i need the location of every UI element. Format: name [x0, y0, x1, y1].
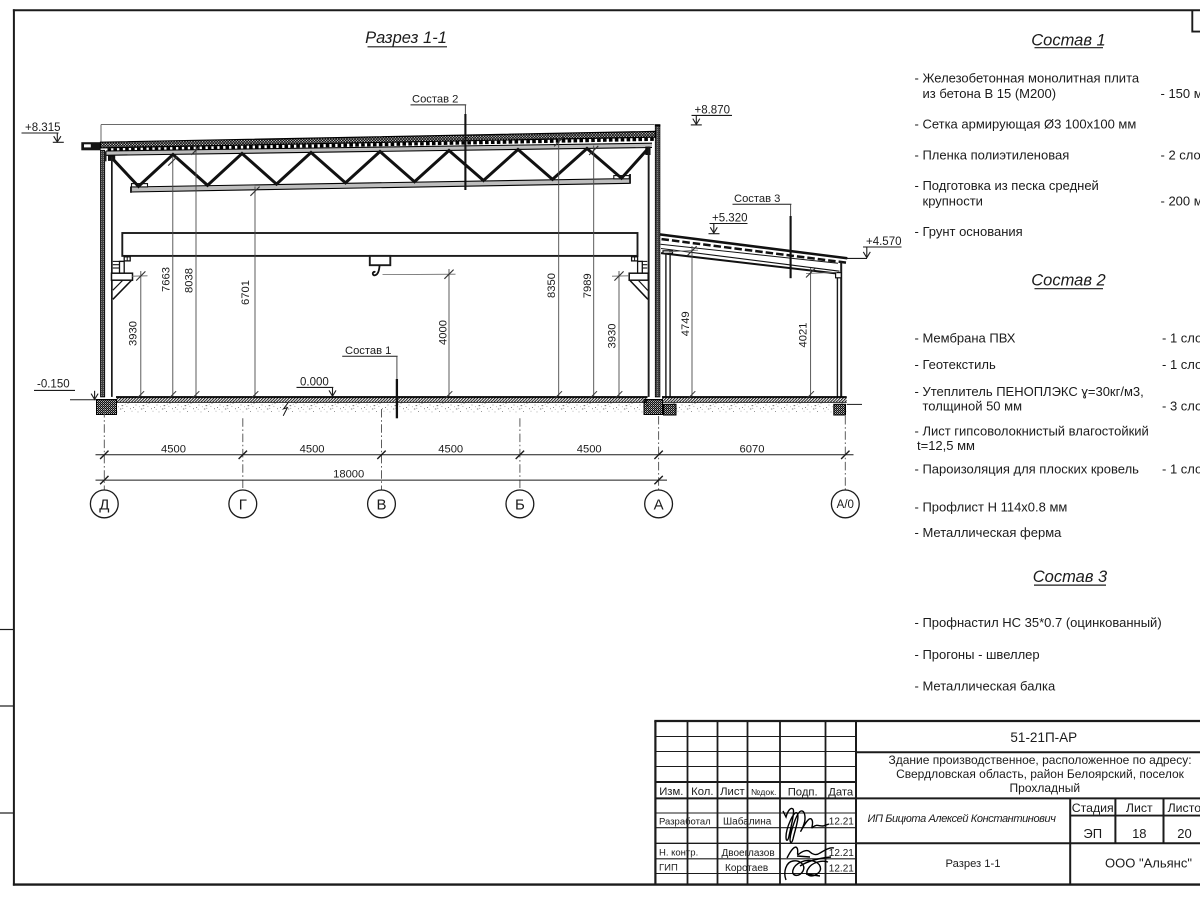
svg-text:Дата: Дата	[828, 786, 854, 798]
svg-text:20: 20	[1177, 826, 1191, 841]
svg-text:- Профнастил НС 35*0.7 (оцинко: - Профнастил НС 35*0.7 (оцинкованный)	[915, 615, 1162, 630]
svg-text:Свердловская область, район Бе: Свердловская область, район Белоярский, …	[896, 767, 1185, 781]
svg-text:- Сетка армирующая Ø3 100х100: - Сетка армирующая Ø3 100х100 мм	[915, 117, 1137, 132]
svg-text:4500: 4500	[577, 443, 602, 455]
svg-text:18: 18	[1132, 826, 1146, 841]
svg-text:Коротаев: Коротаев	[725, 863, 768, 874]
svg-text:Кол.: Кол.	[691, 786, 713, 798]
svg-text:крупности: крупности	[923, 194, 983, 209]
svg-text:Разрез 1-1: Разрез 1-1	[365, 29, 447, 47]
svg-text:3930: 3930	[606, 324, 618, 349]
svg-text:Здание производственное, распо: Здание производственное, расположенное п…	[888, 753, 1191, 767]
svg-text:-0.150: -0.150	[37, 379, 70, 391]
svg-text:А/0: А/0	[837, 499, 854, 511]
svg-text:- 1 слой: - 1 слой	[1162, 462, 1200, 477]
svg-text:0.000: 0.000	[300, 377, 329, 389]
svg-text:4500: 4500	[438, 443, 463, 455]
svg-text:18000: 18000	[333, 469, 364, 481]
svg-text:7989: 7989	[582, 273, 594, 298]
svg-text:- 1 слой: - 1 слой	[1162, 330, 1200, 345]
svg-text:4021: 4021	[798, 323, 810, 348]
svg-text:- 1 слой: - 1 слой	[1162, 357, 1200, 372]
svg-text:Изм.: Изм.	[659, 786, 683, 798]
svg-text:Двоеглазов: Двоеглазов	[722, 848, 775, 859]
svg-text:- Металлическая балка: - Металлическая балка	[915, 679, 1056, 694]
svg-text:ЭП: ЭП	[1083, 826, 1102, 841]
svg-text:12.21: 12.21	[829, 848, 854, 859]
svg-text:№док.: №док.	[751, 787, 776, 797]
svg-text:В: В	[376, 496, 386, 513]
svg-text:6701: 6701	[240, 280, 252, 305]
svg-text:Состав 2: Состав 2	[412, 94, 458, 106]
svg-text:- Мембрана ПВХ: - Мембрана ПВХ	[915, 330, 1016, 345]
svg-text:+5.320: +5.320	[712, 213, 748, 225]
svg-text:- Прогоны - швеллер: - Прогоны - швеллер	[915, 647, 1040, 662]
svg-text:51-21П-АР: 51-21П-АР	[1010, 730, 1077, 745]
svg-text:Разрез 1-1: Разрез 1-1	[946, 858, 1001, 870]
svg-text:Г: Г	[239, 496, 247, 513]
svg-text:4000: 4000	[438, 320, 450, 345]
svg-text:7663: 7663	[161, 267, 173, 292]
svg-text:t=12,5 мм: t=12,5 мм	[917, 438, 975, 453]
svg-text:12.21: 12.21	[829, 863, 854, 874]
svg-text:4500: 4500	[300, 443, 325, 455]
svg-text:8350: 8350	[546, 273, 558, 298]
svg-text:Д: Д	[99, 496, 109, 513]
svg-text:Стадия: Стадия	[1072, 801, 1114, 815]
svg-text:ГИП: ГИП	[659, 863, 678, 874]
svg-text:- 2 слоя: - 2 слоя	[1161, 148, 1200, 163]
svg-text:- Профлист Н 114х0.8 мм: - Профлист Н 114х0.8 мм	[915, 500, 1068, 515]
svg-text:ИП Бицюта Алексей Константинов: ИП Бицюта Алексей Константинович	[868, 813, 1057, 825]
svg-text:Состав 1: Состав 1	[1031, 31, 1105, 49]
svg-text:- Грунт основания: - Грунт основания	[915, 224, 1023, 239]
svg-text:- 150 мм: - 150 мм	[1161, 86, 1200, 101]
svg-text:- Подготовка из песка средней: - Подготовка из песка средней	[915, 178, 1099, 193]
svg-text:- Железобетонная монолитная п: - Железобетонная монолитная плита	[915, 71, 1140, 86]
svg-text:Шабалина: Шабалина	[723, 816, 772, 828]
svg-text:из бетона В 15 (М200): из бетона В 15 (М200)	[923, 86, 1057, 101]
svg-text:- Утеплитель ПЕНОПЛЭКС ɣ=30кг/: - Утеплитель ПЕНОПЛЭКС ɣ=30кг/м3,	[915, 384, 1144, 399]
svg-text:Лист: Лист	[720, 786, 745, 798]
svg-text:- 3 слоя: - 3 слоя	[1162, 398, 1200, 413]
svg-text:3930: 3930	[127, 321, 139, 346]
svg-text:Листов: Листов	[1168, 801, 1200, 815]
svg-text:Н. контр.: Н. контр.	[659, 848, 698, 859]
svg-text:Разработал: Разработал	[659, 816, 711, 827]
svg-text:- Металлическая ферма: - Металлическая ферма	[915, 525, 1063, 540]
svg-text:А: А	[654, 496, 664, 513]
svg-text:4500: 4500	[161, 443, 186, 455]
svg-text:Подп.: Подп.	[788, 786, 818, 798]
svg-text:- Геотекстиль: - Геотекстиль	[915, 357, 996, 372]
svg-text:4749: 4749	[680, 311, 692, 336]
svg-text:Состав 3: Состав 3	[734, 193, 780, 205]
svg-text:- Пленка полиэтиленовая: - Пленка полиэтиленовая	[915, 148, 1070, 163]
svg-text:Состав 1: Состав 1	[345, 345, 391, 357]
svg-text:+4.570: +4.570	[866, 236, 902, 248]
svg-text:ООО "Альянс": ООО "Альянс"	[1105, 855, 1192, 870]
svg-text:12.21: 12.21	[829, 817, 854, 828]
svg-text:6070: 6070	[740, 443, 765, 455]
svg-text:толщиной 50 мм: толщиной 50 мм	[923, 398, 1023, 413]
svg-text:Лист: Лист	[1126, 801, 1153, 815]
svg-text:- Пароизоляция для плоских кро: - Пароизоляция для плоских кровель	[915, 462, 1140, 477]
svg-text:- 200 мм: - 200 мм	[1161, 194, 1200, 209]
svg-text:8038: 8038	[184, 268, 196, 293]
svg-text:Прохладный: Прохладный	[1010, 781, 1080, 795]
svg-text:Б: Б	[515, 496, 525, 513]
svg-text:Состав 3: Состав 3	[1033, 568, 1108, 586]
svg-text:+8.315: +8.315	[25, 122, 61, 134]
svg-text:- Лист гипсоволокнистый влагос: - Лист гипсоволокнистый влагостойкий	[915, 424, 1149, 439]
svg-text:Состав 2: Состав 2	[1031, 272, 1105, 290]
